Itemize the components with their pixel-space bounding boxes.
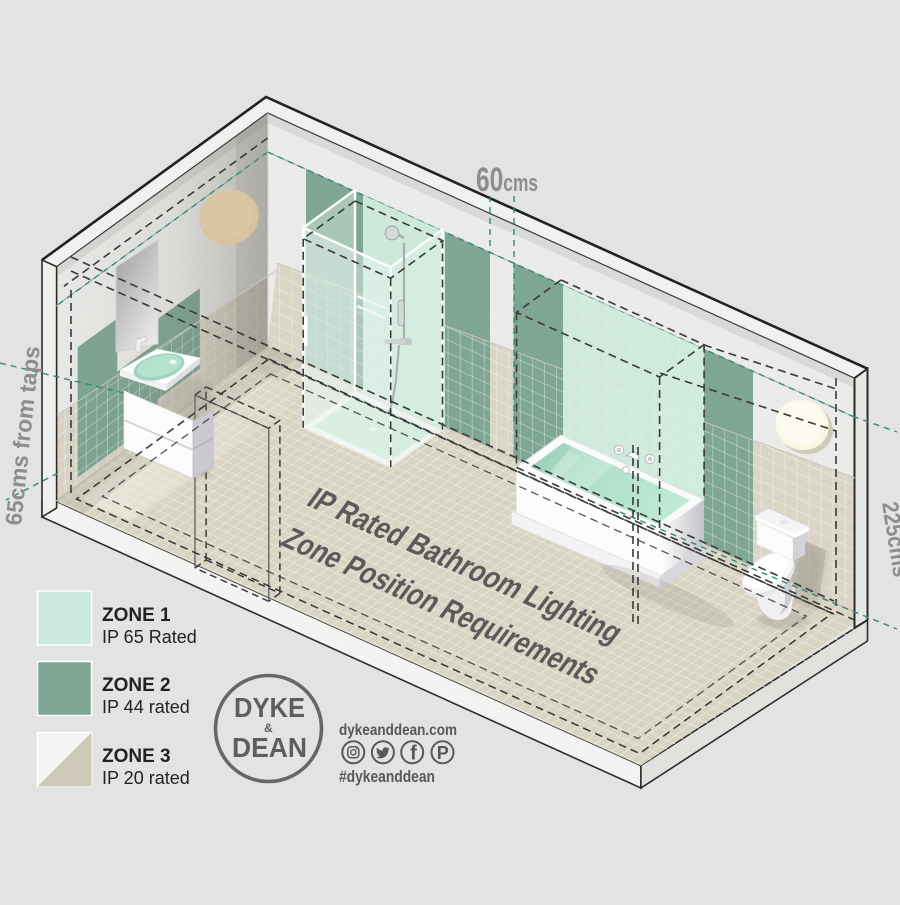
svg-text:ZONE 1: ZONE 1 <box>102 605 171 626</box>
svg-text:IP 20 rated: IP 20 rated <box>102 768 190 788</box>
svg-text:ZONE 2: ZONE 2 <box>102 675 171 696</box>
svg-text:DEAN: DEAN <box>232 732 307 763</box>
svg-text:#dykeanddean: #dykeanddean <box>339 767 435 786</box>
svg-text:ZONE 3: ZONE 3 <box>102 746 171 767</box>
svg-text:IP 44 rated: IP 44 rated <box>102 697 190 717</box>
svg-text:dykeanddean.com: dykeanddean.com <box>339 722 457 739</box>
svg-text:f: f <box>410 743 417 765</box>
svg-text:P: P <box>437 743 449 763</box>
svg-text:DYKE: DYKE <box>234 692 305 723</box>
svg-text:IP 65 Rated: IP 65 Rated <box>102 627 197 647</box>
